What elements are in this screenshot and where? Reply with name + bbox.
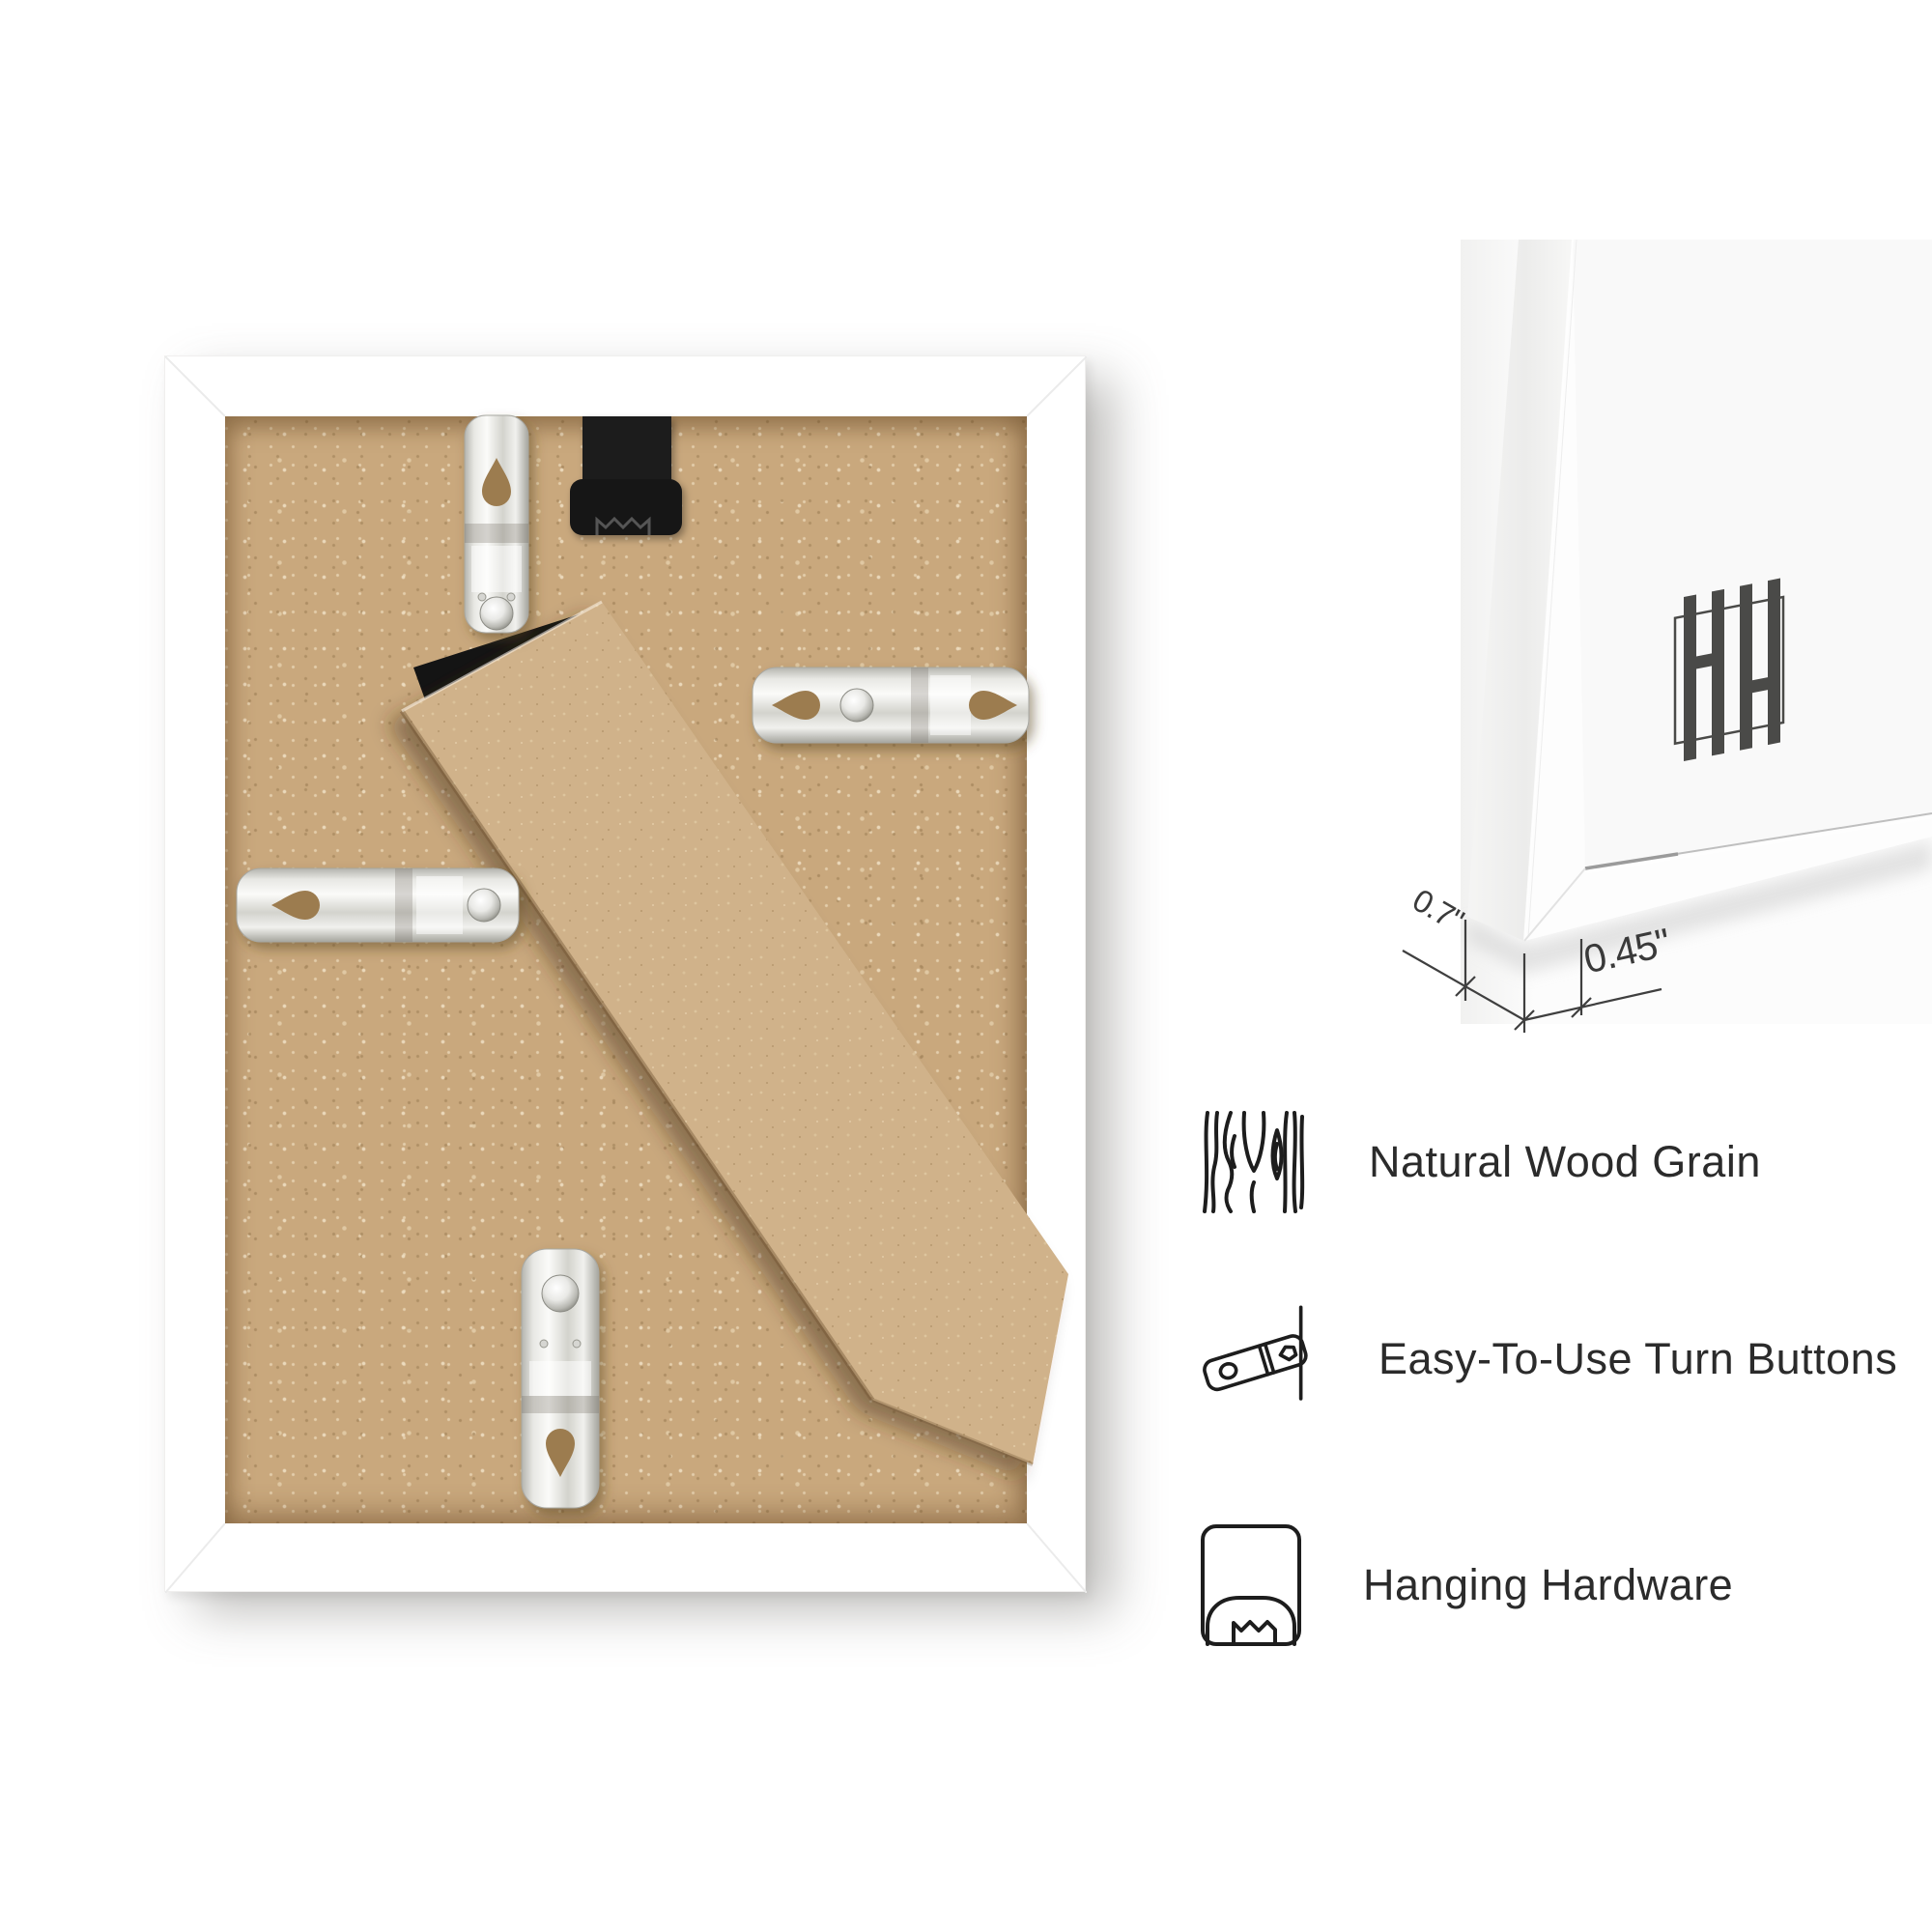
turn-button-left: [237, 868, 519, 942]
feature-row-wood-grain: Natural Wood Grain: [1201, 1111, 1761, 1213]
rivet-dome: [542, 1275, 579, 1312]
turn-button-top: [465, 415, 528, 633]
frame-back-photo: [164, 355, 1086, 1592]
depth-dimension-line: [1403, 951, 1524, 1020]
feature-row-turn-buttons: Easy-To-Use Turn Buttons: [1201, 1296, 1897, 1422]
depth-dimension-label: 0.7": [1406, 882, 1469, 939]
sawtooth-plate: [570, 479, 682, 535]
feature-row-hanging-hardware: Hanging Hardware: [1201, 1524, 1733, 1646]
dimension-annotation: 0.7" 0.45": [1348, 865, 1734, 1072]
feature-label-hanging-hardware: Hanging Hardware: [1363, 1560, 1733, 1610]
feature-label-turn-buttons: Easy-To-Use Turn Buttons: [1378, 1334, 1897, 1384]
frame-back-details: [165, 356, 1087, 1593]
rivet-dome: [480, 597, 513, 630]
wood-grain-icon: [1201, 1111, 1307, 1213]
rivet-dome: [468, 889, 500, 922]
feature-label-wood-grain: Natural Wood Grain: [1369, 1137, 1761, 1187]
turn-button-right: [753, 668, 1029, 743]
glass-mat-area: [1573, 240, 1932, 868]
hanging-hardware-icon: [1201, 1524, 1301, 1646]
face-width-dimension-label: 0.45": [1579, 920, 1673, 981]
product-infographic: 0.7" 0.45" Natural Wood Grain: [0, 0, 1932, 1932]
rivet-dome: [840, 689, 873, 722]
turn-button-icon: [1201, 1296, 1317, 1422]
turn-button-bottom: [522, 1249, 599, 1508]
hanger-tab: [570, 416, 682, 535]
face-dimension-line: [1524, 989, 1662, 1020]
